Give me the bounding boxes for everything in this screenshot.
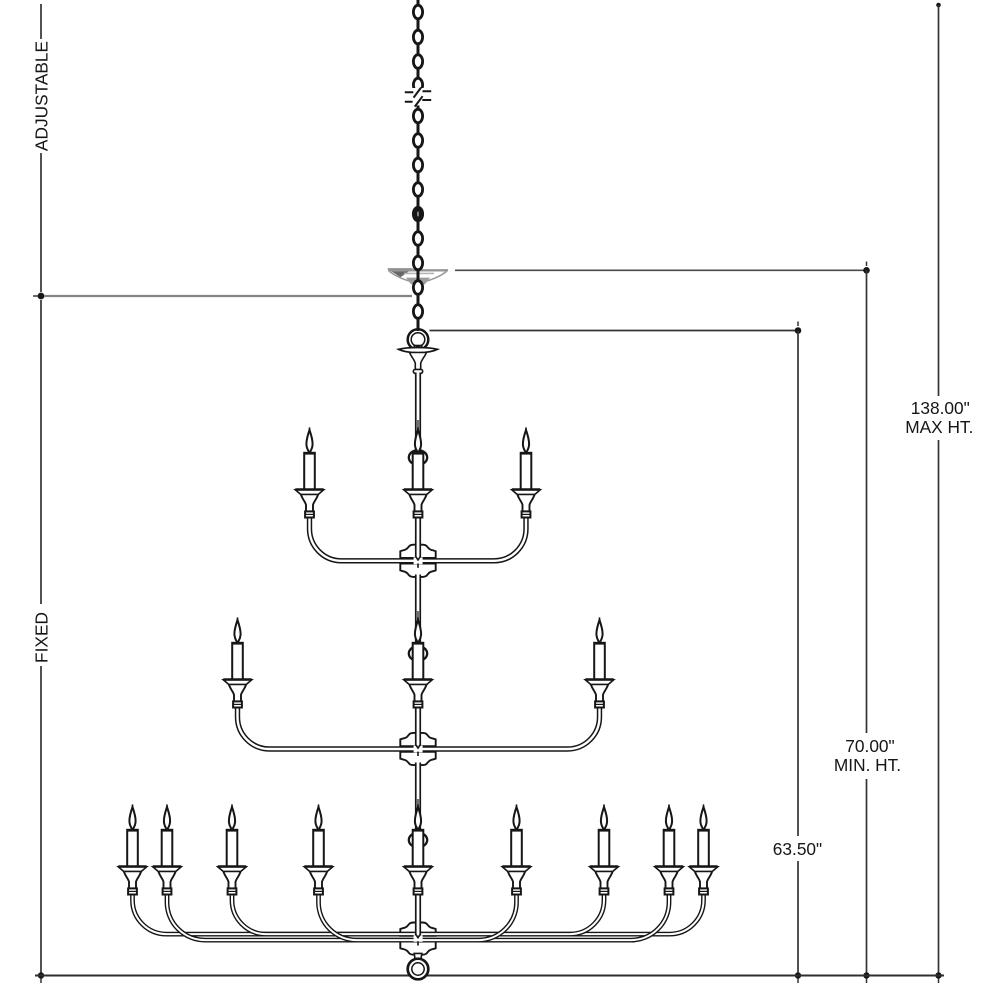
svg-text:63.50": 63.50" bbox=[773, 839, 822, 859]
svg-text:ADJUSTABLE: ADJUSTABLE bbox=[32, 41, 52, 151]
svg-text:FIXED: FIXED bbox=[32, 612, 52, 663]
svg-text:MAX HT.: MAX HT. bbox=[905, 417, 973, 437]
svg-text:138.00": 138.00" bbox=[911, 398, 970, 418]
svg-text:MIN. HT.: MIN. HT. bbox=[834, 755, 901, 775]
svg-text:70.00": 70.00" bbox=[845, 736, 894, 756]
